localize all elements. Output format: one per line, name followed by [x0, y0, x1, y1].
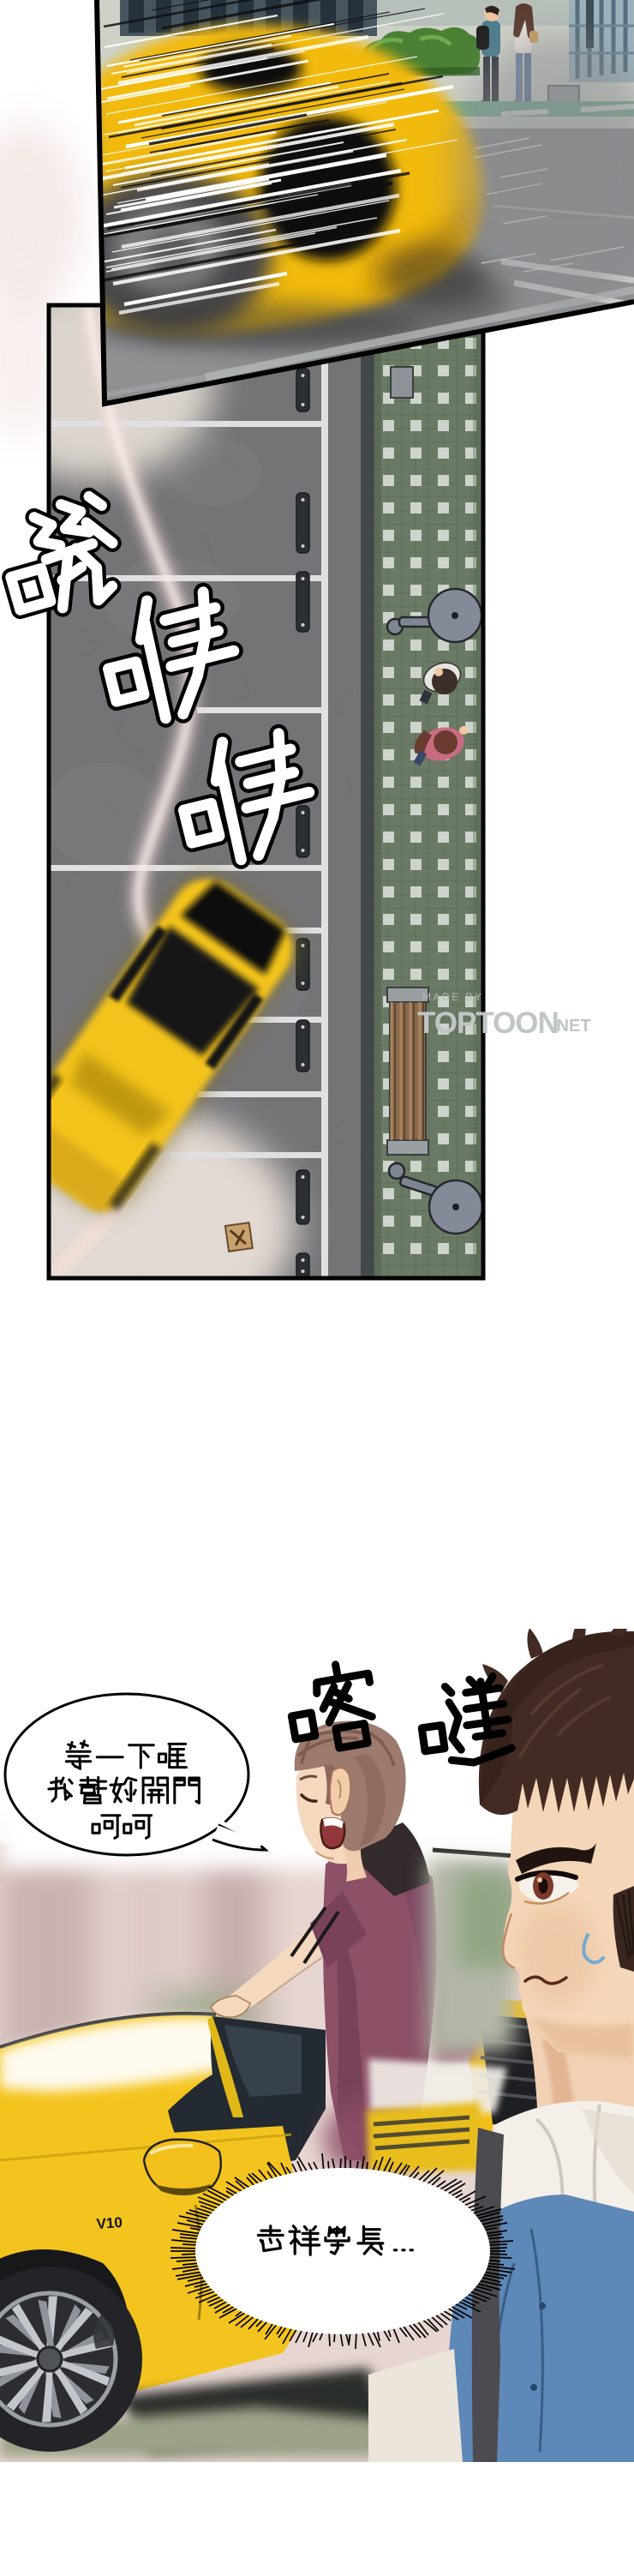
svg-text:TOPTOON: TOPTOON	[417, 1006, 559, 1040]
svg-text:V10: V10	[96, 2214, 123, 2232]
svg-text:MADE BY: MADE BY	[422, 991, 484, 1003]
svg-text:.NET: .NET	[552, 1017, 591, 1036]
